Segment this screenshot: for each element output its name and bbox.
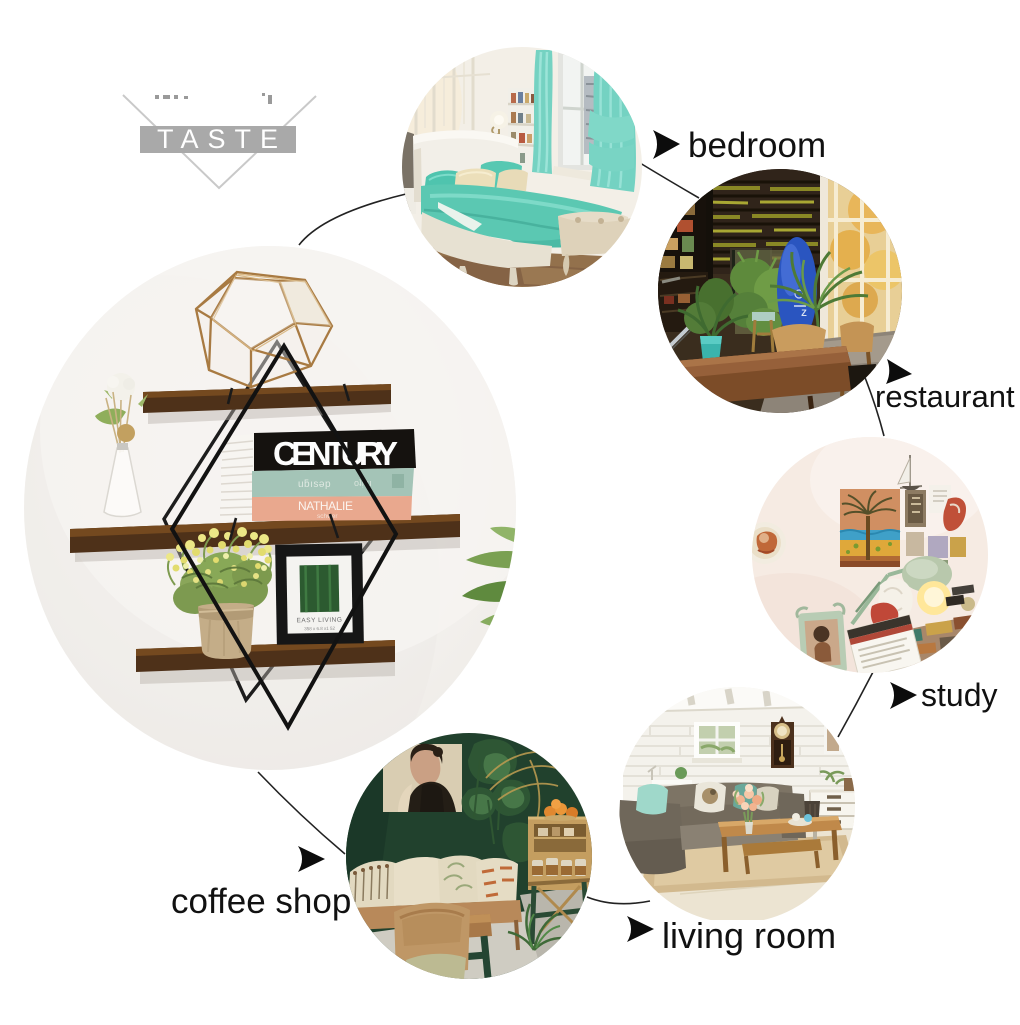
svg-text:TASTE: TASTE xyxy=(157,124,287,154)
svg-text:restaurant: restaurant xyxy=(875,379,1015,414)
svg-text:living room: living room xyxy=(662,915,836,956)
svg-text:Z: Z xyxy=(801,308,807,318)
svg-text:uƃısǝp: uƃısǝp xyxy=(298,479,331,490)
svg-text:NATHALIE: NATHALIE xyxy=(298,499,353,513)
svg-text:bedroom: bedroom xyxy=(688,126,826,165)
svg-text:study: study xyxy=(921,677,997,713)
svg-text:CENTURY: CENTURY xyxy=(273,435,398,472)
svg-text:schwer: schwer xyxy=(317,513,338,520)
svg-text:coffee shop: coffee shop xyxy=(171,882,351,921)
svg-text:358 x 6.8 x1 52: 358 x 6.8 x1 52 xyxy=(304,626,335,632)
svg-text:EASY LIVING: EASY LIVING xyxy=(296,617,342,625)
